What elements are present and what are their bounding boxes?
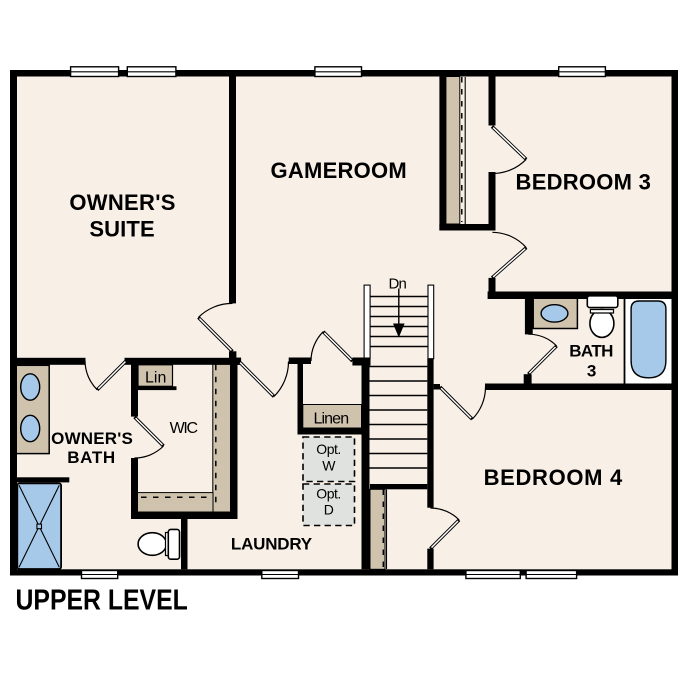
svg-text:UPPER LEVEL: UPPER LEVEL: [16, 584, 188, 616]
svg-text:Opt.: Opt.: [316, 485, 341, 501]
svg-text:SUITE: SUITE: [89, 216, 154, 241]
svg-text:3: 3: [587, 362, 596, 381]
svg-text:D: D: [324, 501, 334, 517]
svg-text:BEDROOM 4: BEDROOM 4: [484, 465, 623, 490]
svg-text:BATH: BATH: [569, 341, 613, 360]
svg-text:Linen: Linen: [314, 411, 350, 428]
svg-text:GAMEROOM: GAMEROOM: [271, 158, 407, 183]
svg-text:W: W: [322, 458, 336, 474]
svg-text:BEDROOM 3: BEDROOM 3: [516, 170, 651, 195]
svg-text:OWNER'S: OWNER'S: [51, 429, 133, 448]
svg-text:Lin: Lin: [145, 369, 167, 386]
svg-text:LAUNDRY: LAUNDRY: [231, 535, 313, 554]
svg-text:Dn: Dn: [389, 275, 407, 292]
svg-text:WIC: WIC: [170, 420, 198, 437]
svg-text:BATH: BATH: [67, 448, 115, 467]
svg-text:Opt.: Opt.: [316, 441, 341, 457]
svg-text:OWNER'S: OWNER'S: [69, 190, 175, 215]
